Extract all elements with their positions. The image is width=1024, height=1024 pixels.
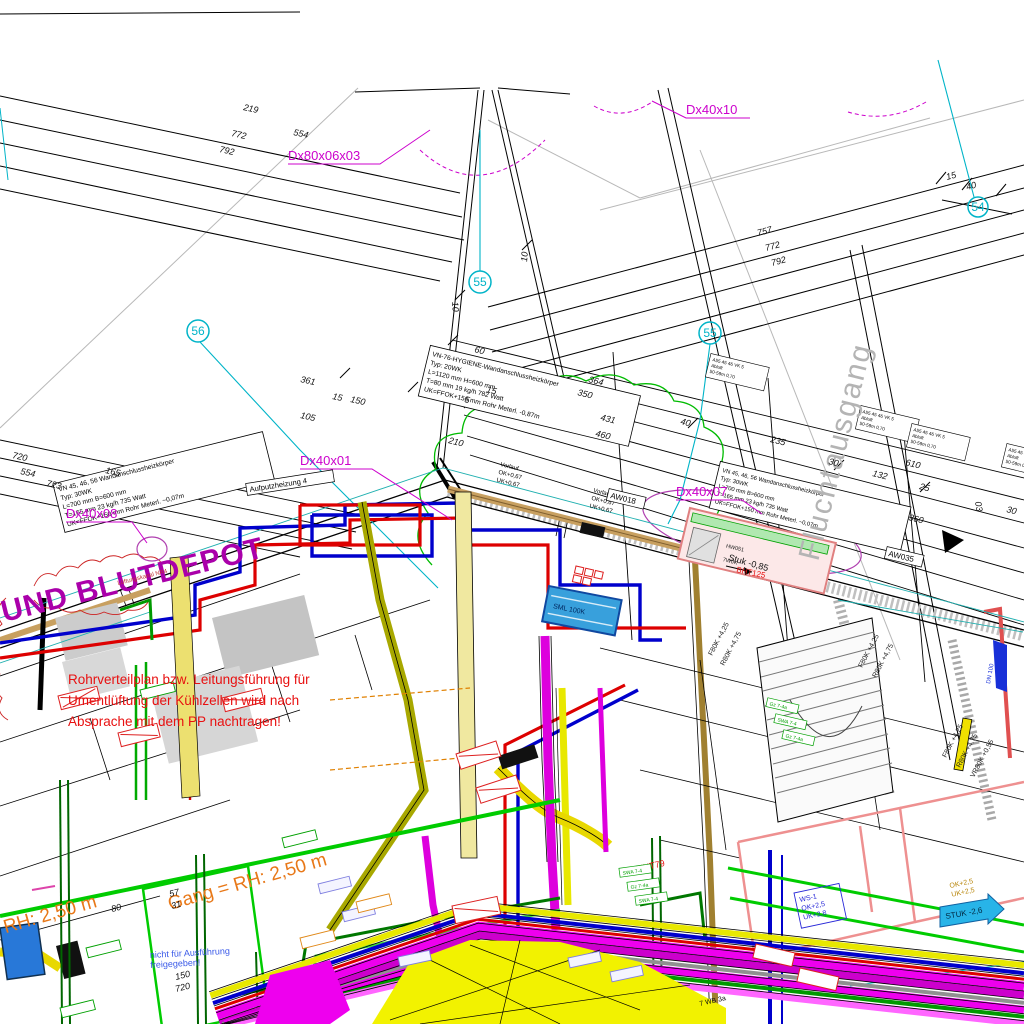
dim: 03 <box>973 501 985 513</box>
red-site-note: Rohrverteilplan bzw. Leitungsführung für… <box>68 672 310 729</box>
duct-label-dx40x01: Dx40x01 <box>300 453 351 468</box>
dim: 25 <box>918 481 932 494</box>
gold-level-labels: OK+2,5 UK+2,5 <box>949 878 976 899</box>
duct-label-dx80x06x03: Dx80x06x03 <box>288 148 360 163</box>
dim: 235 <box>769 434 788 448</box>
orange-dashed-lines <box>330 688 470 770</box>
dimension-texts: 219 772 792 554 757 772 792 15 40 720 55… <box>12 102 1018 994</box>
dim: 15 <box>332 391 345 403</box>
cad-plan-canvas: SML 100K HW051 7W0K <box>0 0 1024 1024</box>
dim: 210 <box>447 435 465 449</box>
vorlauf-stack: Vorlauf OK+0,67 UK+0,67 <box>496 462 525 489</box>
dim: 150 <box>174 969 191 982</box>
dim: 40 <box>965 180 977 192</box>
dim: 132 <box>872 468 889 481</box>
dim: 15 <box>945 169 958 182</box>
blue-note-line2: freigegeben! <box>150 957 201 970</box>
ws-ok-uk-labels: WS-1 OK+2,5 UK+2,8 <box>799 892 828 921</box>
grid-bubble-54: 54 <box>971 200 985 214</box>
dim: 10 <box>519 251 530 262</box>
dim: 360 <box>908 512 925 525</box>
green-stamp: Gz 7-4a <box>630 882 649 890</box>
dim: 757 <box>756 224 774 238</box>
grid-bubble-56: 56 <box>191 324 205 338</box>
grid-bubble-55: 55 <box>703 326 717 340</box>
grid-bubble-55: 55 <box>473 275 487 289</box>
red-note-line3: Absprache mit dem PP nachtragen! <box>68 714 281 729</box>
dimension-fan-top-right <box>488 165 1024 397</box>
red-note-line2: Umentlüftung der Kühlzellen wird nach <box>68 693 299 708</box>
dim: 219 <box>242 102 260 115</box>
dim: 460 <box>595 428 612 441</box>
tag-dn100: DN 100 <box>986 663 996 685</box>
duct-label-dx40x07: Dx40x07 <box>676 484 727 499</box>
grid-bubbles <box>187 197 988 344</box>
plan-drawing: SML 100K HW051 7W0K <box>0 0 1024 1024</box>
duct-label-dx40x10: Dx40x10 <box>686 102 737 117</box>
blue-validity-note: nicht für Ausführung freigegeben! <box>150 946 231 970</box>
dim: 554 <box>20 466 37 479</box>
dim: 30 <box>1006 504 1018 516</box>
dim: 361 <box>300 374 317 387</box>
dim: 792 <box>219 144 236 157</box>
dim: 10 <box>450 301 461 312</box>
duct-label-dx40x08: Dx40x08 <box>66 506 117 521</box>
dim: 723 <box>46 478 63 491</box>
red-note-line1: Rohrverteilplan bzw. Leitungsführung für <box>68 672 310 687</box>
dim: 105 <box>300 410 318 423</box>
gang-height-label: Gang = RH: 2,50 m <box>166 849 330 914</box>
dim: 792 <box>770 254 787 268</box>
dim: 772 <box>764 239 781 253</box>
dim: 60 <box>474 344 486 356</box>
dim: 80 <box>110 902 122 914</box>
dim: 720 <box>174 981 191 994</box>
dim: 772 <box>231 128 248 141</box>
dim: 150 <box>350 394 367 407</box>
dim: 554 <box>293 127 310 140</box>
